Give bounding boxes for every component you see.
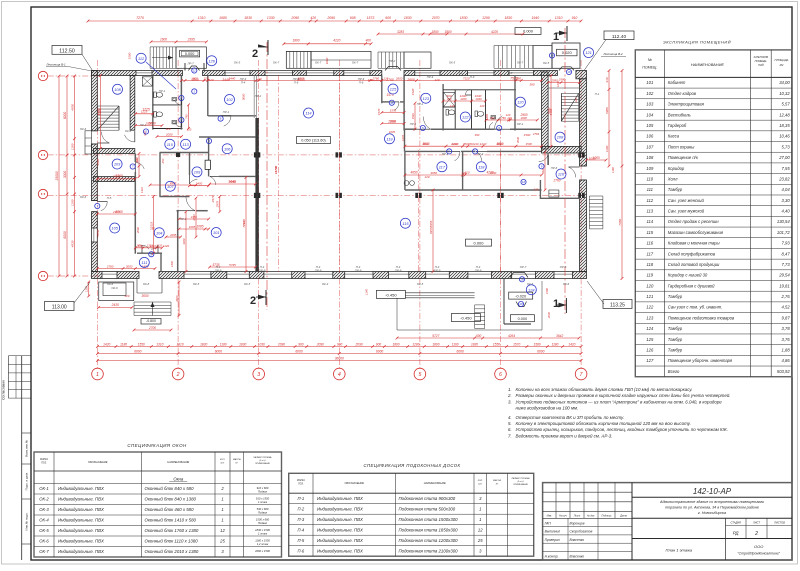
svg-text:Кладовая и моечная тары: Кладовая и моечная тары	[668, 241, 720, 246]
svg-text:5980: 5980	[605, 107, 609, 114]
svg-text:4220: 4220	[491, 30, 498, 34]
svg-text:1: 1	[553, 298, 559, 310]
svg-text:2700: 2700	[148, 326, 156, 330]
svg-text:1570: 1570	[513, 342, 520, 346]
svg-text:1310: 1310	[198, 16, 206, 20]
svg-text:4,52: 4,52	[782, 305, 791, 310]
svg-text:ОК-5: ОК-5	[244, 282, 251, 286]
svg-text:МАРКА: МАРКА	[297, 479, 305, 482]
svg-text:118: 118	[646, 262, 653, 267]
svg-text:Подоконная плита 500х300: Подоконная плита 500х300	[399, 506, 456, 511]
svg-text:110: 110	[167, 142, 174, 147]
svg-text:Кол.уч: Кол.уч	[559, 514, 567, 517]
svg-text:2873: 2873	[192, 214, 196, 221]
svg-text:1520: 1520	[411, 88, 415, 95]
svg-text:Индивидуальные. ПВХ: Индивидуальные. ПВХ	[58, 528, 105, 533]
svg-text:Подвал: Подвал	[258, 510, 268, 514]
svg-text:380: 380	[463, 142, 468, 146]
svg-text:0.000: 0.000	[523, 29, 534, 34]
svg-text:ПР-2: ПР-2	[255, 94, 262, 98]
svg-text:ОК-1: ОК-1	[39, 486, 48, 491]
svg-text:250: 250	[161, 158, 165, 164]
svg-text:12: 12	[220, 528, 225, 533]
svg-text:6000: 6000	[295, 349, 303, 353]
svg-text:1605: 1605	[401, 134, 405, 141]
svg-text:36000: 36000	[335, 356, 344, 360]
svg-text:2: 2	[176, 372, 180, 378]
svg-text:1180: 1180	[220, 342, 227, 346]
svg-text:СПЕЦИФИКАЦИЯ ОКОН: СПЕЦИФИКАЦИЯ ОКОН	[127, 443, 187, 448]
svg-text:1 этаж: 1 этаж	[258, 531, 267, 535]
svg-text:Индивидуальные. ПВХ: Индивидуальные. ПВХ	[58, 549, 105, 554]
svg-text:ОК-5: ОК-5	[417, 282, 424, 286]
svg-text:0.020: 0.020	[562, 50, 573, 55]
svg-text:2090: 2090	[326, 16, 335, 20]
svg-text:П-6: П-6	[294, 80, 299, 84]
svg-text:Тамбур: Тамбур	[668, 187, 683, 192]
svg-text:Скоробогатов: Скоробогатов	[570, 530, 593, 534]
svg-text:6000: 6000	[457, 349, 465, 353]
svg-text:620: 620	[135, 157, 139, 162]
svg-text:0.000: 0.000	[518, 317, 528, 321]
svg-text:ПР-1: ПР-1	[140, 123, 147, 127]
svg-text:1000: 1000	[325, 57, 329, 64]
svg-text:ОР-9: ОР-9	[315, 269, 322, 273]
svg-text:2090: 2090	[277, 342, 285, 346]
svg-text:ниже воздуховодов на 100 мм.: ниже воздуховодов на 100 мм.	[516, 406, 579, 411]
svg-text:Индивидуальные. ПВХ: Индивидуальные. ПВХ	[317, 527, 364, 532]
svg-text:0.050 (113.60): 0.050 (113.60)	[301, 139, 326, 143]
svg-text:106: 106	[224, 146, 231, 151]
svg-text:900: 900	[385, 16, 391, 20]
svg-text:119: 119	[386, 136, 393, 141]
svg-text:1085: 1085	[196, 225, 203, 229]
svg-text:12: 12	[478, 527, 483, 532]
svg-text:ПРИМЕЧАНИЕ: ПРИМЕЧАНИЕ	[513, 483, 528, 486]
svg-text:ЭКСПЛИКАЦИЯ ПОМЕЩЕНИЙ: ЭКСПЛИКАЦИЯ ПОМЕЩЕНИЙ	[663, 40, 731, 45]
svg-text:3540: 3540	[516, 136, 520, 143]
svg-text:1310: 1310	[156, 342, 163, 346]
svg-text:1830: 1830	[200, 342, 207, 346]
svg-text:2000: 2000	[547, 311, 551, 319]
svg-text:6000: 6000	[134, 349, 142, 353]
svg-text:Индивидуальные. ПВХ: Индивидуальные. ПВХ	[317, 548, 364, 553]
svg-text:4,40: 4,40	[782, 209, 791, 214]
svg-text:Устройство подвесных потолков: Устройство подвесных потолков — из плит …	[516, 399, 723, 405]
svg-text:РАЗМЕР ПРОЕМА: РАЗМЕР ПРОЕМА	[512, 477, 530, 480]
svg-text:103: 103	[114, 162, 121, 167]
svg-text:2760: 2760	[372, 76, 380, 80]
svg-text:1600: 1600	[160, 38, 167, 42]
svg-text:106: 106	[646, 134, 654, 139]
svg-text:120: 120	[534, 188, 539, 192]
svg-text:570: 570	[137, 244, 142, 248]
svg-text:5: 5	[418, 372, 421, 378]
svg-text:18: 18	[520, 277, 524, 281]
svg-text:Сан узел с пом. уб. инвент.: Сан узел с пом. уб. инвент.	[668, 305, 723, 310]
svg-text:Склад полуфабрикатов: Склад полуфабрикатов	[668, 251, 716, 256]
svg-text:№ док.: № док.	[587, 514, 595, 517]
svg-text:ПР-1: ПР-1	[410, 122, 417, 126]
svg-text:Выполнил: Выполнил	[545, 530, 561, 534]
svg-text:4,04: 4,04	[782, 187, 791, 192]
svg-text:П-6: П-6	[297, 548, 304, 553]
svg-text:КОЛ.: КОЛ.	[478, 480, 483, 482]
svg-text:ОК-2: ОК-2	[39, 497, 49, 502]
svg-text:Подпись: Подпись	[602, 514, 613, 517]
svg-text:Вестибюль: Вестибюль	[668, 112, 691, 117]
svg-text:ОК-5: ОК-5	[449, 61, 456, 65]
svg-text:Подп. и дата: Подп. и дата	[24, 472, 28, 490]
svg-text:14: 14	[550, 54, 554, 58]
svg-text:107: 107	[646, 144, 654, 149]
svg-text:2090: 2090	[290, 16, 299, 20]
svg-text:29,54: 29,54	[778, 273, 790, 278]
svg-text:Холл: Холл	[667, 176, 678, 181]
svg-text:Индивидуальные. ПВХ: Индивидуальные. ПВХ	[58, 518, 105, 523]
svg-text:Оконный блок 1410 х 580: Оконный блок 1410 х 580	[145, 518, 197, 523]
svg-text:5735: 5735	[229, 263, 236, 267]
svg-text:ОК-7: ОК-7	[352, 61, 359, 65]
svg-text:3: 3	[257, 372, 260, 378]
svg-text:Отдел кадров: Отдел кадров	[668, 91, 697, 96]
svg-text:(b х h): (b х h)	[518, 481, 524, 483]
svg-text:ПРИМЕЧАНИЕ: ПРИМЕЧАНИЕ	[255, 462, 270, 465]
svg-text:18,35: 18,35	[779, 123, 790, 128]
svg-text:Подвал: Подвал	[258, 489, 268, 493]
svg-text:П-5: П-5	[107, 196, 112, 200]
svg-text:2060 х 1500: 2060 х 1500	[254, 549, 270, 553]
svg-text:120: 120	[203, 76, 208, 80]
svg-text:400: 400	[366, 39, 372, 43]
svg-text:4230: 4230	[490, 171, 497, 175]
svg-text:Тамбур: Тамбур	[668, 326, 683, 331]
svg-text:КОЛ.: КОЛ.	[220, 459, 225, 461]
svg-text:110: 110	[646, 176, 653, 181]
svg-text:127: 127	[646, 358, 654, 363]
svg-text:Устройство крылец, козырьков,: Устройство крылец, козырьков, пандусов, …	[516, 426, 728, 432]
svg-text:1800: 1800	[444, 30, 451, 34]
svg-text:Оконный блок 1760 х 1380: Оконный блок 1760 х 1380	[145, 528, 199, 533]
svg-text:2070: 2070	[431, 16, 440, 20]
svg-text:ОР-6: ОР-6	[560, 265, 567, 269]
svg-text:М2: М2	[780, 63, 784, 67]
svg-text:ЛИСТОВ: ЛИСТОВ	[773, 521, 785, 525]
svg-text:Подвал: Подвал	[258, 521, 268, 525]
svg-text:1210: 1210	[472, 142, 479, 146]
svg-text:120: 120	[574, 97, 578, 102]
svg-text:6000: 6000	[63, 231, 67, 239]
svg-text:Индивидуальные. ПВХ: Индивидуальные. ПВХ	[317, 538, 364, 543]
svg-text:124: 124	[646, 326, 654, 331]
svg-text:380: 380	[529, 83, 534, 87]
svg-text:503,92: 503,92	[777, 369, 790, 374]
svg-text:1573: 1573	[390, 108, 397, 112]
svg-text:ОК-7: ОК-7	[273, 61, 280, 65]
svg-text:г. Новосибирска: г. Новосибирска	[698, 511, 726, 515]
svg-text:ОК-7: ОК-7	[315, 61, 322, 65]
svg-text:2600: 2600	[395, 76, 403, 80]
svg-text:112: 112	[138, 56, 145, 61]
svg-text:4650: 4650	[410, 171, 417, 175]
svg-text:27,00: 27,00	[778, 155, 790, 160]
svg-text:Оконный блок 840 х 580: Оконный блок 840 х 580	[145, 486, 195, 491]
svg-text:120: 120	[517, 100, 524, 105]
svg-text:120: 120	[646, 283, 654, 288]
svg-text:1: 1	[479, 517, 481, 522]
svg-text:Коридор с нишей 30: Коридор с нишей 30	[668, 273, 708, 278]
svg-text:Дата: Дата	[619, 514, 627, 517]
svg-text:3642: 3642	[556, 334, 563, 338]
svg-text:ОК-6: ОК-6	[107, 282, 114, 286]
svg-text:8,47: 8,47	[782, 251, 791, 256]
svg-text:ЛИСТ: ЛИСТ	[752, 521, 760, 525]
svg-text:Коридор: Коридор	[668, 166, 685, 171]
svg-text:124: 124	[528, 287, 535, 292]
svg-text:7,93: 7,93	[782, 241, 791, 246]
svg-text:СТАДИЯ: СТАДИЯ	[730, 521, 741, 525]
svg-text:Тамбур: Тамбур	[668, 347, 683, 352]
svg-text:ОК-7: ОК-7	[517, 61, 524, 65]
svg-text:7270: 7270	[136, 16, 144, 20]
svg-text:101: 101	[646, 80, 653, 85]
svg-text:1400: 1400	[196, 182, 203, 186]
svg-text:1573: 1573	[386, 93, 393, 97]
svg-text:1: 1	[479, 506, 481, 511]
svg-text:3000: 3000	[141, 294, 148, 298]
svg-text:П-9: П-9	[470, 75, 475, 79]
svg-text:П-4: П-4	[297, 527, 304, 532]
svg-text:120: 120	[384, 76, 389, 80]
svg-text:900: 900	[337, 342, 343, 346]
svg-text:ОК-5: ОК-5	[543, 61, 550, 65]
svg-text:2060: 2060	[136, 226, 140, 234]
svg-text:НАИМЕНОВАНИЕ: НАИМЕНОВАНИЕ	[691, 62, 725, 67]
svg-text:19,81: 19,81	[779, 283, 789, 288]
svg-text:ОК-4: ОК-4	[39, 518, 49, 523]
svg-text:1580: 1580	[534, 342, 541, 346]
svg-text:Помещение подготовки товаров: Помещение подготовки товаров	[668, 315, 735, 320]
svg-text:114: 114	[305, 111, 312, 116]
svg-text:130,54: 130,54	[777, 219, 790, 224]
svg-text:4830: 4830	[70, 104, 74, 111]
svg-text:2600: 2600	[406, 78, 415, 82]
svg-text:1210: 1210	[480, 142, 487, 146]
svg-text:119: 119	[646, 273, 653, 278]
svg-text:4220: 4220	[333, 39, 340, 43]
svg-text:3283: 3283	[397, 30, 404, 34]
svg-text:5.: 5.	[508, 421, 512, 426]
svg-text:ОР-7: ОР-7	[520, 265, 527, 269]
svg-text:1500: 1500	[526, 142, 533, 146]
svg-text:5727: 5727	[432, 334, 439, 338]
svg-text:910: 910	[490, 116, 495, 120]
svg-text:109: 109	[194, 170, 201, 175]
svg-text:105: 105	[111, 226, 118, 231]
svg-text:План 1 этажа: План 1 этажа	[666, 548, 693, 553]
svg-text:7,73: 7,73	[782, 262, 791, 267]
svg-text:МАРКА: МАРКА	[40, 458, 48, 461]
svg-text:1550: 1550	[138, 342, 145, 346]
svg-text:112.50: 112.50	[59, 49, 75, 55]
svg-text:ОК-6: ОК-6	[39, 539, 49, 544]
svg-text:Индивидуальные. ПВХ: Индивидуальные. ПВХ	[317, 496, 364, 501]
svg-text:Индивидуальные. ПВХ: Индивидуальные. ПВХ	[58, 486, 105, 491]
svg-text:126: 126	[208, 58, 215, 63]
svg-text:108: 108	[646, 155, 654, 160]
svg-text:3010: 3010	[496, 142, 503, 146]
svg-text:120: 120	[187, 128, 192, 132]
svg-text:ОК-5: ОК-5	[193, 282, 200, 286]
svg-text:121: 121	[646, 294, 653, 299]
svg-text:Кабинет: Кабинет	[668, 80, 686, 85]
svg-text:6000: 6000	[63, 112, 67, 120]
svg-text:Н.контр.: Н.контр.	[545, 555, 559, 559]
svg-text:113: 113	[182, 142, 189, 147]
svg-text:5480: 5480	[547, 107, 551, 114]
svg-text:2: 2	[250, 295, 256, 307]
svg-text:18: 18	[390, 101, 394, 105]
svg-text:ПР-1: ПР-1	[180, 217, 187, 221]
svg-text:1310: 1310	[555, 16, 563, 20]
svg-text:1500: 1500	[524, 133, 531, 137]
svg-text:ОК-6: ОК-6	[125, 129, 132, 133]
svg-text:380: 380	[516, 76, 521, 80]
svg-text:120: 120	[461, 171, 466, 175]
svg-text:3,30: 3,30	[782, 198, 791, 203]
svg-text:9,87: 9,87	[782, 315, 791, 320]
svg-text:10,46: 10,46	[779, 134, 790, 139]
svg-text:122: 122	[646, 305, 654, 310]
svg-text:120: 120	[480, 104, 485, 108]
svg-text:Подоконная плита 1850х300: Подоконная плита 1850х300	[399, 527, 459, 532]
svg-text:1: 1	[96, 372, 99, 378]
svg-text:ПОЗ.: ПОЗ.	[298, 484, 304, 486]
svg-text:ОР-9: ОР-9	[355, 269, 362, 273]
svg-text:П-8: П-8	[508, 71, 513, 75]
svg-text:Индивидуальные. ПВХ: Индивидуальные. ПВХ	[58, 497, 105, 502]
svg-text:113.25: 113.25	[610, 303, 625, 309]
svg-text:2000: 2000	[389, 119, 397, 123]
svg-text:Инв.№ подл.: Инв.№ подл.	[24, 512, 28, 530]
svg-text:ОК-3: ОК-3	[39, 507, 49, 512]
svg-text:1030: 1030	[475, 97, 482, 101]
svg-text:7130: 7130	[242, 221, 246, 228]
svg-text:П-3: П-3	[297, 517, 304, 522]
svg-text:4,86: 4,86	[782, 358, 791, 363]
svg-text:25: 25	[477, 538, 483, 543]
svg-text:2000: 2000	[165, 132, 173, 136]
svg-text:740: 740	[184, 114, 188, 119]
svg-text:ПР-1: ПР-1	[417, 102, 424, 106]
svg-text:2: 2	[754, 531, 758, 537]
svg-text:15000: 15000	[55, 171, 59, 180]
svg-text:3400: 3400	[175, 295, 179, 302]
svg-text:Сан. узел мужской: Сан. узел мужской	[668, 209, 705, 214]
svg-text:П-4: П-4	[458, 71, 463, 75]
svg-text:2: 2	[252, 48, 258, 60]
svg-text:1030: 1030	[258, 342, 265, 346]
svg-text:Лист: Лист	[573, 514, 580, 517]
svg-text:ОК-8: ОК-8	[143, 282, 150, 286]
svg-text:(b х h): (b х h)	[260, 460, 266, 462]
svg-text:113: 113	[646, 209, 653, 214]
svg-text:1085: 1085	[189, 225, 196, 229]
svg-text:ПОМЕЩЕ-: ПОМЕЩЕ-	[755, 60, 767, 63]
svg-text:Оконный блок 840 х 1380: Оконный блок 840 х 1380	[145, 497, 197, 502]
svg-text:1225: 1225	[141, 110, 148, 114]
svg-text:1160: 1160	[452, 342, 459, 346]
svg-text:1830: 1830	[471, 342, 478, 346]
svg-text:ШТ.: ШТ.	[478, 484, 482, 486]
svg-text:2979: 2979	[216, 201, 220, 209]
svg-text:Помещение п/к: Помещение п/к	[668, 155, 699, 160]
svg-text:111: 111	[141, 260, 147, 265]
svg-text:7.: 7.	[508, 434, 512, 439]
svg-text:Гардеробная с душевой: Гардеробная с душевой	[668, 283, 715, 288]
svg-text:8955: 8955	[429, 227, 433, 234]
svg-text:1310: 1310	[140, 186, 144, 193]
svg-text:ПР-1: ПР-1	[159, 89, 166, 93]
svg-text:2435: 2435	[111, 303, 119, 307]
svg-text:2.: 2.	[507, 393, 512, 398]
svg-text:Тамбур: Тамбур	[668, 294, 683, 299]
svg-text:Индивидуальные. ПВХ: Индивидуальные. ПВХ	[317, 517, 364, 522]
svg-text:910: 910	[572, 16, 578, 20]
svg-text:-0.450: -0.450	[460, 316, 472, 321]
svg-text:1830: 1830	[404, 16, 412, 20]
svg-text:Подоконная плита 1200х300: Подоконная плита 1200х300	[399, 538, 459, 543]
svg-text:ОР-9: ОР-9	[434, 269, 441, 273]
svg-text:1420: 1420	[103, 342, 110, 346]
svg-text:0.000: 0.000	[473, 240, 484, 245]
svg-text:1500: 1500	[128, 52, 132, 59]
svg-text:18: 18	[519, 302, 523, 306]
svg-text:ОК-5: ОК-5	[527, 282, 534, 286]
svg-text:-0.800: -0.800	[146, 319, 156, 323]
svg-text:125: 125	[390, 87, 397, 92]
svg-text:1830 х 1500: 1830 х 1500	[255, 528, 270, 532]
svg-text:105: 105	[646, 123, 654, 128]
svg-text:1180: 1180	[70, 143, 74, 150]
svg-text:П-1: П-1	[595, 92, 600, 96]
svg-text:115: 115	[402, 221, 409, 226]
svg-text:1830: 1830	[460, 16, 468, 20]
svg-text:120: 120	[424, 175, 429, 179]
svg-text:530 х 660: 530 х 660	[257, 507, 269, 511]
svg-text:2020: 2020	[96, 158, 100, 166]
svg-text:142-10-АР: 142-10-АР	[693, 487, 732, 496]
svg-text:1160 х 1500: 1160 х 1500	[255, 538, 270, 542]
svg-text:117: 117	[439, 164, 446, 169]
svg-text:НАИМЕНОВАНИЕ: НАИМЕНОВАНИЕ	[167, 460, 189, 464]
svg-text:600: 600	[476, 334, 482, 338]
svg-text:3030: 3030	[422, 142, 429, 146]
svg-text:П-5: П-5	[297, 538, 304, 543]
svg-text:ПР-9: ПР-9	[427, 75, 434, 79]
svg-text:Взам.инв.№: Взам.инв.№	[24, 439, 28, 457]
svg-text:Тамбур: Тамбур	[668, 337, 683, 342]
svg-text:1400: 1400	[170, 260, 174, 267]
svg-text:103: 103	[646, 102, 654, 107]
svg-text:Оконный блок 1110 х 1380: Оконный блок 1110 х 1380	[145, 539, 199, 544]
svg-text:1800: 1800	[191, 76, 198, 80]
svg-text:112: 112	[646, 198, 653, 203]
svg-text:ОК-6: ОК-6	[80, 127, 87, 131]
svg-text:1800: 1800	[292, 39, 299, 43]
svg-text:113.00: 113.00	[52, 305, 67, 311]
svg-text:1550: 1550	[493, 342, 500, 346]
